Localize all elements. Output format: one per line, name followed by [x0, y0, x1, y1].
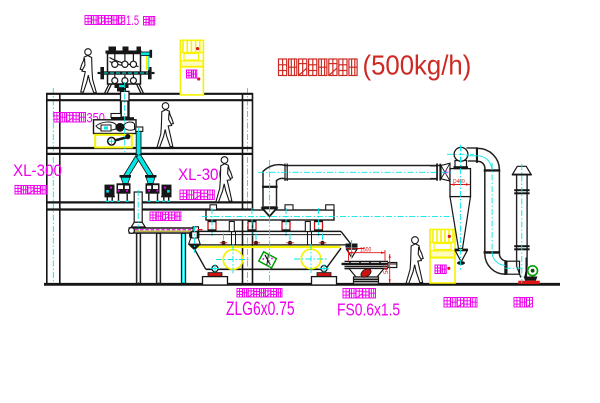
svg-text:ZLG6x0.75: ZLG6x0.75: [226, 298, 295, 320]
svg-text:D400: D400: [453, 179, 465, 185]
svg-text:FS0.6x1.5: FS0.6x1.5: [337, 300, 400, 320]
svg-text:545: 545: [384, 263, 390, 274]
svg-text:1500: 1500: [360, 247, 371, 253]
svg-text:XL-300: XL-300: [13, 162, 62, 180]
svg-text:(500kg/h): (500kg/h): [363, 50, 472, 81]
svg-text:1.5: 1.5: [126, 12, 139, 28]
